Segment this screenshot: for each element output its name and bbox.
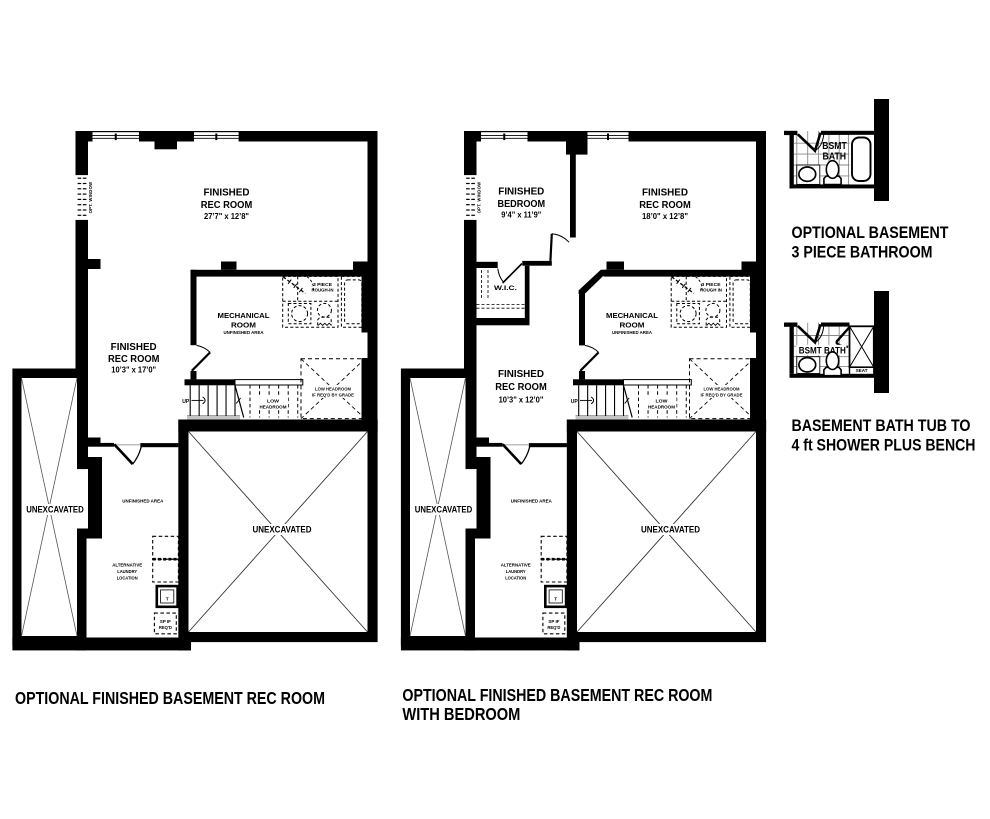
- svg-text:ALTERNATIVE: ALTERNATIVE: [112, 562, 142, 567]
- svg-text:OPTIONAL FINISHED BASEMENT REC: OPTIONAL FINISHED BASEMENT REC ROOM: [15, 688, 325, 708]
- svg-text:3 PIECE BATHROOM: 3 PIECE BATHROOM: [792, 244, 933, 262]
- svg-text:UNEXCAVATED: UNEXCAVATED: [641, 524, 700, 534]
- svg-text:FINISHED: FINISHED: [111, 342, 157, 353]
- svg-text:FINISHED: FINISHED: [498, 186, 544, 197]
- svg-text:SP IF: SP IF: [160, 619, 171, 624]
- svg-text:FINISHED: FINISHED: [204, 187, 250, 198]
- svg-text:18’0" x 12’8": 18’0" x 12’8": [642, 211, 688, 221]
- svg-text:LAUNDRY: LAUNDRY: [117, 569, 138, 574]
- svg-text:4 ft SHOWER PLUS BENCH: 4 ft SHOWER PLUS BENCH: [792, 436, 976, 454]
- svg-text:LOW: LOW: [656, 398, 669, 403]
- svg-text:UNEXCAVATED: UNEXCAVATED: [253, 524, 312, 534]
- svg-text:REQ'D: REQ'D: [159, 625, 172, 630]
- svg-text:10’3" x 17’0": 10’3" x 17’0": [111, 364, 156, 374]
- svg-text:HEADROOM: HEADROOM: [648, 405, 675, 410]
- svg-text:LOW: LOW: [267, 398, 280, 403]
- svg-text:OPT. WINDOW: OPT. WINDOW: [88, 181, 93, 214]
- svg-text:27’7" x 12’8": 27’7" x 12’8": [204, 211, 249, 221]
- svg-text:REC ROOM: REC ROOM: [201, 200, 253, 211]
- svg-text:ROUGH IN: ROUGH IN: [700, 288, 722, 293]
- svg-text:FINISHED: FINISHED: [642, 188, 688, 199]
- svg-text:SP IF: SP IF: [548, 619, 559, 624]
- svg-text:BASEMENT BATH TUB TO: BASEMENT BATH TUB TO: [792, 417, 971, 435]
- svg-text:MECHANICAL: MECHANICAL: [606, 311, 658, 320]
- svg-text:LOCATION: LOCATION: [505, 575, 527, 580]
- svg-text:OPTIONAL FINISHED BASEMENT REC: OPTIONAL FINISHED BASEMENT REC ROOM: [402, 685, 712, 705]
- svg-text:UNEXCAVATED: UNEXCAVATED: [415, 504, 473, 514]
- svg-text:ALTERNATIVE: ALTERNATIVE: [501, 562, 531, 567]
- svg-text:3 PIECE: 3 PIECE: [313, 282, 332, 287]
- svg-text:LAUNDRY: LAUNDRY: [506, 569, 527, 574]
- svg-text:MECHANICAL: MECHANICAL: [218, 311, 270, 320]
- svg-text:W.I.C.: W.I.C.: [494, 285, 517, 292]
- svg-text:UP: UP: [571, 399, 579, 405]
- svg-text:BATH: BATH: [823, 152, 847, 163]
- svg-text:UNFINISHED AREA: UNFINISHED AREA: [224, 330, 265, 335]
- svg-text:BEDROOM: BEDROOM: [498, 199, 546, 210]
- svg-text:ROUGH-IN: ROUGH-IN: [312, 288, 334, 293]
- svg-text:T: T: [166, 597, 169, 603]
- svg-text:UP: UP: [182, 399, 190, 405]
- svg-text:BSMT BATH: BSMT BATH: [799, 345, 846, 356]
- svg-text:OPTIONAL BASEMENT: OPTIONAL BASEMENT: [792, 224, 949, 242]
- svg-text:REQ'D: REQ'D: [547, 625, 560, 630]
- svg-text:IF REQ'D BY GRADE: IF REQ'D BY GRADE: [312, 393, 354, 398]
- svg-text:UNFINISHED AREA: UNFINISHED AREA: [511, 499, 553, 504]
- svg-text:OPT. WINDOW: OPT. WINDOW: [476, 181, 481, 214]
- svg-text:UNEXCAVATED: UNEXCAVATED: [26, 504, 84, 514]
- svg-text:REC ROOM: REC ROOM: [108, 354, 160, 365]
- svg-text:T: T: [554, 597, 557, 603]
- svg-text:HEADROOM: HEADROOM: [260, 405, 287, 410]
- svg-text:IF REQ'D BY GRADE: IF REQ'D BY GRADE: [701, 393, 743, 398]
- svg-text:9’4" x 11’9": 9’4" x 11’9": [501, 210, 541, 220]
- svg-text:ROOM: ROOM: [620, 321, 645, 330]
- svg-text:FINISHED: FINISHED: [498, 369, 544, 380]
- svg-text:REC ROOM: REC ROOM: [639, 200, 691, 211]
- svg-text:ROOM: ROOM: [231, 321, 256, 330]
- svg-text:SEAT: SEAT: [856, 368, 868, 373]
- svg-text:10’3" x 12’0": 10’3" x 12’0": [499, 394, 544, 404]
- svg-text:WITH BEDROOM: WITH BEDROOM: [402, 704, 520, 724]
- svg-text:LOW HEADROOM: LOW HEADROOM: [704, 386, 740, 391]
- svg-text:LOW HEADROOM: LOW HEADROOM: [315, 386, 351, 391]
- svg-text:REC ROOM: REC ROOM: [495, 382, 547, 393]
- svg-text:LOCATION: LOCATION: [117, 575, 139, 580]
- svg-text:UNFINISHED AREA: UNFINISHED AREA: [612, 330, 653, 335]
- svg-text:UNFINISHED AREA: UNFINISHED AREA: [122, 499, 164, 504]
- svg-text:3 PIECE: 3 PIECE: [702, 282, 721, 287]
